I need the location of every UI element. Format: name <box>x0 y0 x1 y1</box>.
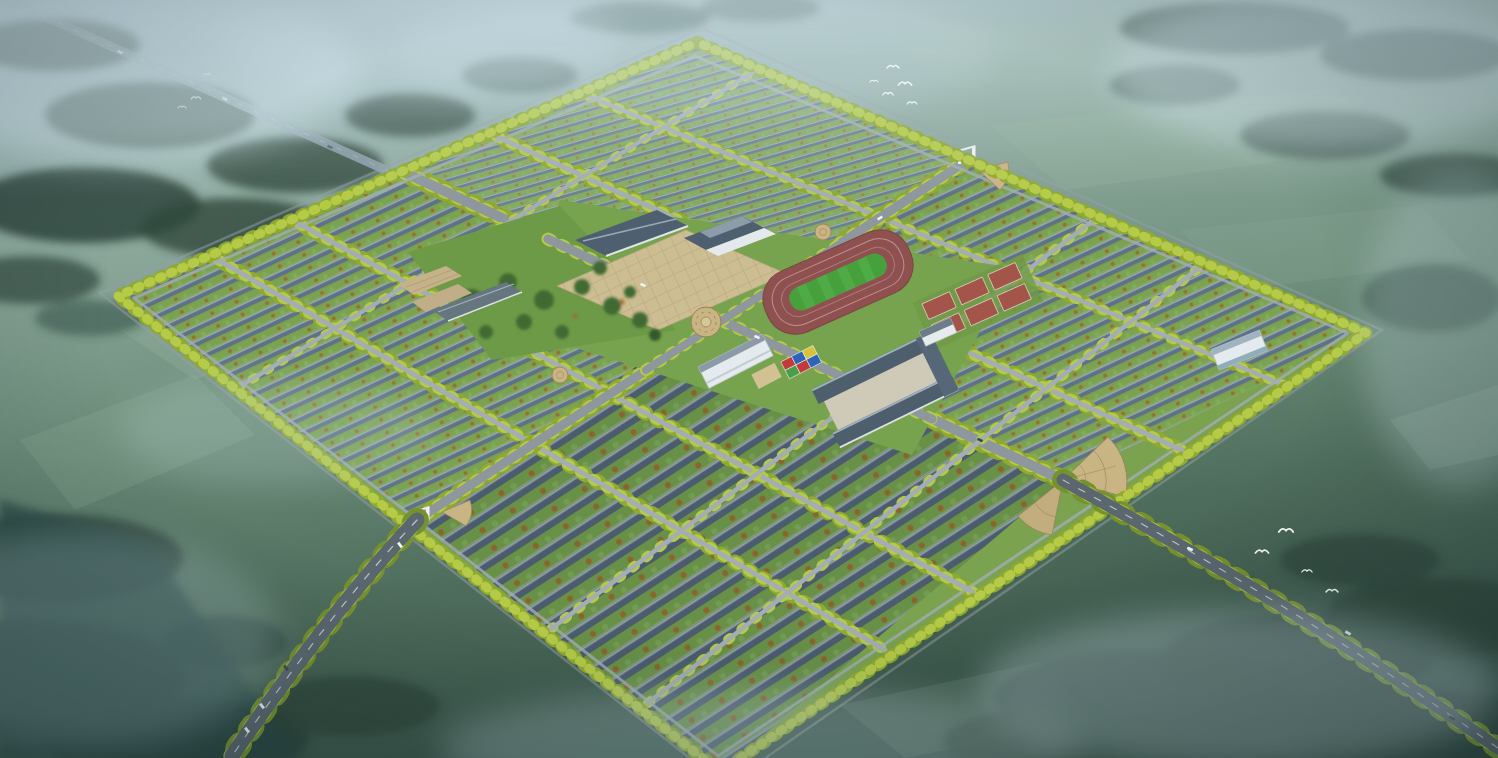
vignette <box>0 0 1498 758</box>
aerial-rendering: Aerial bird's-eye rendering of a master-… <box>0 0 1498 758</box>
aerial-rendering-stage: Aerial bird's-eye rendering of a master-… <box>0 0 1498 758</box>
mist-banks <box>0 0 1498 758</box>
